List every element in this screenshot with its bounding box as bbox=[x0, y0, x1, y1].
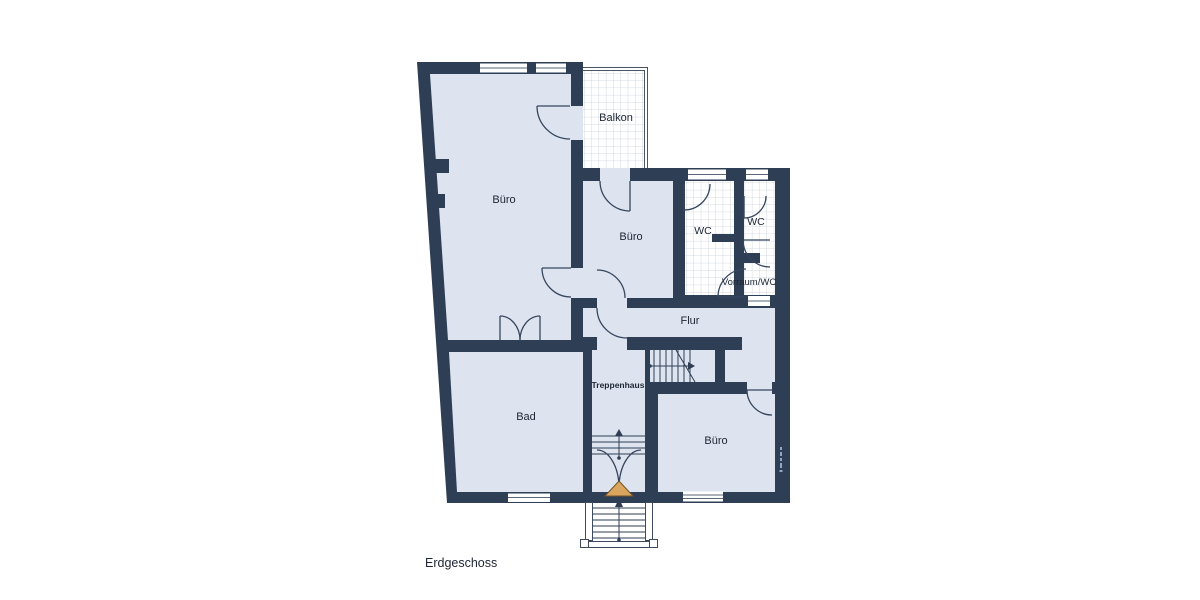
window bbox=[748, 296, 770, 306]
flur-alcove bbox=[725, 350, 775, 382]
opening-balkon-mittelbuero bbox=[600, 168, 630, 181]
room-flur bbox=[583, 308, 775, 337]
window bbox=[746, 170, 768, 180]
window bbox=[688, 170, 726, 180]
room-label-buero-middle: Büro bbox=[619, 231, 642, 243]
room-buero-top-left bbox=[430, 74, 571, 340]
room-label-balkon: Balkon bbox=[599, 112, 633, 124]
opening-balkon-door bbox=[571, 106, 583, 140]
wc-divider-opening bbox=[760, 253, 775, 263]
window bbox=[480, 64, 527, 73]
window bbox=[508, 494, 550, 503]
wc-partition-stub bbox=[712, 234, 734, 242]
wall-notch bbox=[430, 159, 449, 173]
room-label-vorraum-wc: Vorraum/WC bbox=[722, 277, 777, 288]
room-label-buero-top-left: Büro bbox=[492, 194, 515, 206]
wall-notch bbox=[432, 194, 445, 208]
opening-buero-buero bbox=[571, 268, 583, 298]
window bbox=[683, 492, 723, 502]
room-label-treppenhaus: Treppenhaus bbox=[592, 380, 645, 390]
opening-buero-door bbox=[747, 382, 772, 394]
opening-flur-alcove bbox=[742, 337, 775, 350]
window bbox=[536, 64, 566, 73]
room-label-bad: Bad bbox=[516, 411, 536, 423]
room-treppenhaus bbox=[592, 350, 645, 492]
room-label-flur: Flur bbox=[681, 315, 700, 327]
staircase-external bbox=[581, 498, 658, 548]
floor-plan: Büro Balkon Büro WC WC Vorraum/WC Flur T… bbox=[0, 0, 1200, 600]
room-label-wc-small: WC bbox=[747, 216, 765, 228]
floor-plan-page: Büro Balkon Büro WC WC Vorraum/WC Flur T… bbox=[0, 0, 1200, 600]
opening-flur-treppenhaus bbox=[597, 337, 627, 350]
room-label-wc-main: WC bbox=[694, 225, 712, 237]
floor-caption: Erdgeschoss bbox=[425, 556, 497, 570]
opening-buero-flur bbox=[597, 298, 627, 308]
room-label-buero-bottom-right: Büro bbox=[704, 435, 727, 447]
